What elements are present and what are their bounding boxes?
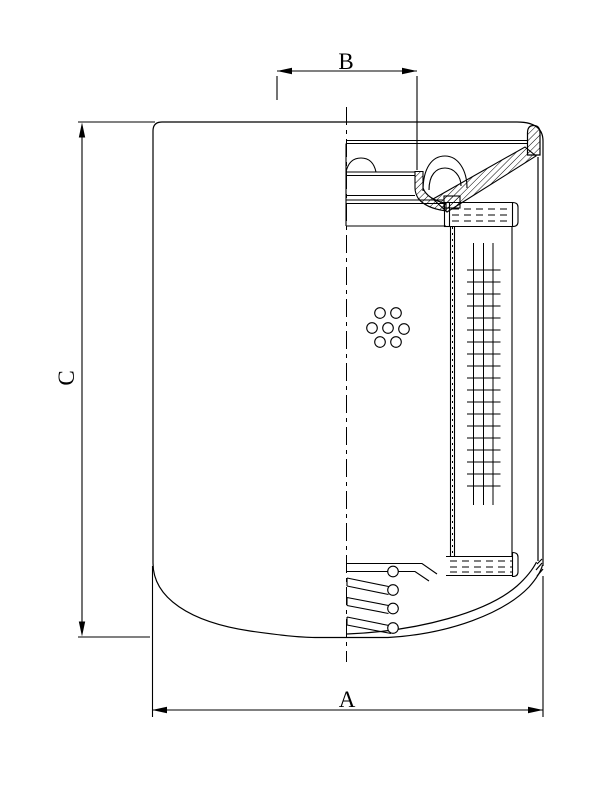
top-cap-right-tab <box>513 203 519 227</box>
dim-a-label: A <box>339 687 356 712</box>
dim-c-arrow-bottom <box>79 622 85 637</box>
dimension-a: A <box>152 566 543 717</box>
dim-b-arrow-left <box>277 68 292 74</box>
dim-b-arrow-right <box>402 68 417 74</box>
top-plate-section <box>346 141 536 227</box>
dim-a-arrow-right <box>528 707 543 713</box>
dim-c-label: C <box>54 370 79 385</box>
dim-a-arrow-left <box>152 707 167 713</box>
inner-dome-arc <box>346 158 376 172</box>
spring-wire-sections <box>388 566 399 633</box>
can-bottom-outer <box>153 563 543 638</box>
coil-spring <box>347 566 398 633</box>
drawing-canvas: B C A <box>0 0 612 792</box>
filter-can-shell <box>153 122 543 638</box>
dimension-c: C <box>54 122 155 637</box>
bottom-cap-adhesive-dashes <box>450 561 512 572</box>
bottom-cap-right-tab <box>513 553 519 577</box>
dim-c-arrow-top <box>79 123 85 138</box>
inlet-holes <box>367 308 410 348</box>
thread-section-hatch <box>415 172 446 212</box>
top-cap-adhesive-dashes <box>452 209 512 221</box>
dim-b-label: B <box>338 49 353 74</box>
media-pleats <box>467 243 501 505</box>
filter-cross-section-drawing: B C A <box>0 0 612 792</box>
